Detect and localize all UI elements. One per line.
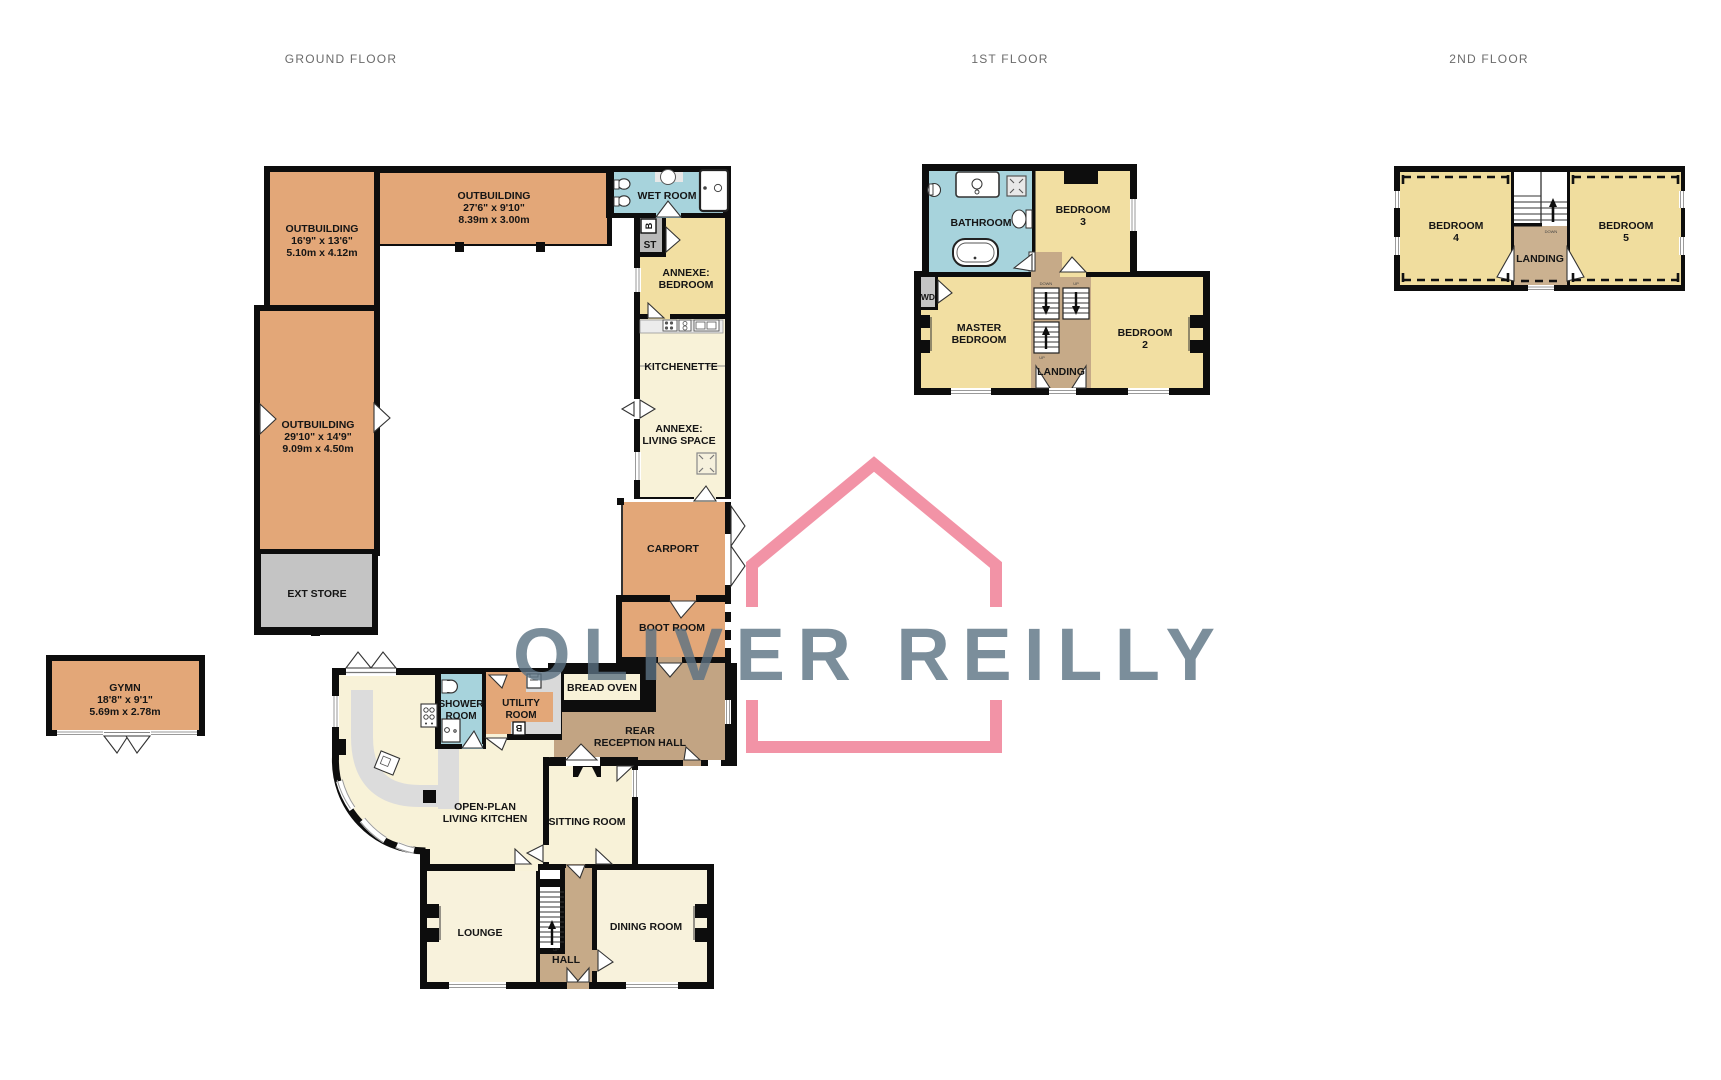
svg-text:DOWN: DOWN [1545,229,1558,234]
svg-text:18'8" x 9'1": 18'8" x 9'1" [97,694,153,706]
svg-text:EXT STORE: EXT STORE [287,588,346,600]
svg-text:OUTBUILDING: OUTBUILDING [458,190,531,202]
svg-text:29'10" x 14'9": 29'10" x 14'9" [284,431,352,443]
svg-text:UP: UP [553,947,559,952]
svg-text:BEDROOM: BEDROOM [1056,204,1111,216]
svg-text:ROOM: ROOM [505,710,536,721]
svg-text:LIVING SPACE: LIVING SPACE [642,435,715,447]
svg-text:8.39m x 3.00m: 8.39m x 3.00m [458,214,529,226]
svg-text:ANNEXE:: ANNEXE: [662,267,709,279]
svg-text:9.09m x 4.50m: 9.09m x 4.50m [282,443,353,455]
svg-text:BEDROOM: BEDROOM [659,279,714,291]
svg-text:GROUND FLOOR: GROUND FLOOR [285,52,397,66]
svg-text:B: B [515,723,522,733]
svg-text:BEDROOM: BEDROOM [1599,220,1654,232]
svg-text:GYMN: GYMN [109,682,141,694]
svg-text:SHOWER: SHOWER [439,699,485,710]
svg-text:3: 3 [1080,216,1086,228]
svg-text:1ST FLOOR: 1ST FLOOR [971,52,1048,66]
svg-text:LIVING KITCHEN: LIVING KITCHEN [443,813,528,825]
svg-text:MASTER: MASTER [957,322,1002,334]
svg-text:5: 5 [1623,232,1629,244]
svg-text:BATHROOM: BATHROOM [950,217,1011,229]
svg-text:ANNEXE:: ANNEXE: [655,423,702,435]
svg-text:KITCHENETTE: KITCHENETTE [644,361,718,373]
svg-text:B: B [644,222,654,229]
svg-text:ST: ST [644,240,657,251]
svg-text:BEDROOM: BEDROOM [1429,220,1484,232]
svg-text:LANDING: LANDING [1037,366,1085,378]
svg-text:BEDROOM: BEDROOM [952,334,1007,346]
svg-text:HALL: HALL [552,954,581,966]
svg-text:REAR: REAR [625,725,655,737]
svg-text:OUTBUILDING: OUTBUILDING [286,223,359,235]
svg-text:CARPORT: CARPORT [647,543,700,555]
svg-text:27'6" x 9'10": 27'6" x 9'10" [463,202,525,214]
svg-text:4: 4 [1453,232,1459,244]
svg-text:ROOM: ROOM [445,711,476,722]
svg-text:2: 2 [1142,339,1148,351]
svg-text:UP: UP [1039,355,1045,360]
svg-text:WD: WD [921,292,935,302]
svg-text:LOUNGE: LOUNGE [458,927,503,939]
svg-text:RECEPTION HALL: RECEPTION HALL [594,737,687,749]
svg-text:BEDROOM: BEDROOM [1118,327,1173,339]
svg-text:5.69m x 2.78m: 5.69m x 2.78m [89,706,160,718]
svg-text:SITTING ROOM: SITTING ROOM [549,816,626,828]
svg-text:DOWN: DOWN [1040,281,1053,286]
svg-text:2ND FLOOR: 2ND FLOOR [1449,52,1528,66]
svg-text:UTILITY: UTILITY [502,698,540,709]
svg-text:LANDING: LANDING [1516,253,1564,265]
svg-text:WET ROOM: WET ROOM [638,190,697,202]
svg-text:OPEN-PLAN: OPEN-PLAN [454,801,516,813]
svg-text:UP: UP [1073,281,1079,286]
svg-text:OUTBUILDING: OUTBUILDING [282,419,355,431]
svg-text:5.10m x 4.12m: 5.10m x 4.12m [286,247,357,259]
svg-text:DINING ROOM: DINING ROOM [610,921,683,933]
svg-text:16'9" x 13'6": 16'9" x 13'6" [291,235,353,247]
